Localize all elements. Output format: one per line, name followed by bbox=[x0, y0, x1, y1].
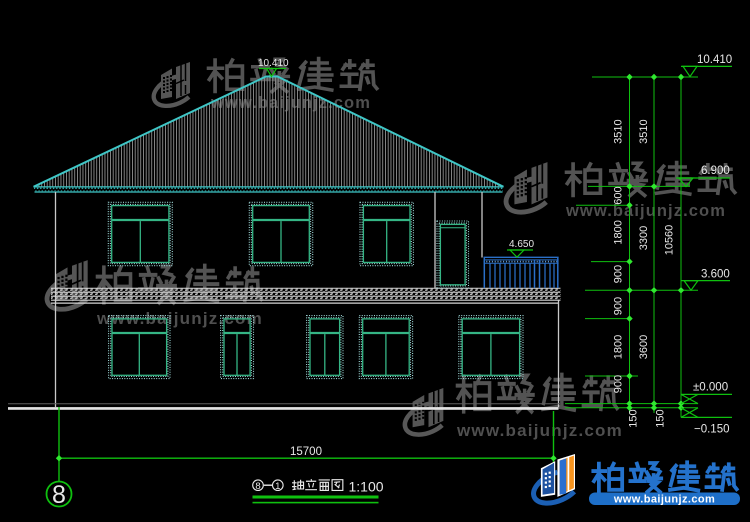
svg-text:6.900: 6.900 bbox=[701, 165, 730, 177]
svg-text:1800: 1800 bbox=[613, 335, 625, 359]
svg-text:4.650: 4.650 bbox=[509, 239, 534, 250]
svg-text:3510: 3510 bbox=[613, 119, 625, 143]
svg-text:3300: 3300 bbox=[638, 226, 650, 250]
svg-text:10.410: 10.410 bbox=[697, 54, 732, 66]
svg-text:900: 900 bbox=[613, 297, 625, 315]
svg-text:1: 1 bbox=[275, 481, 280, 492]
svg-text:3510: 3510 bbox=[638, 119, 650, 143]
svg-text:±0.000: ±0.000 bbox=[693, 382, 728, 394]
svg-text:www.baijunjz.com: www.baijunjz.com bbox=[456, 421, 623, 440]
svg-text:8: 8 bbox=[255, 481, 260, 492]
svg-text:150: 150 bbox=[628, 409, 640, 427]
svg-text:3600: 3600 bbox=[638, 335, 650, 359]
svg-text:150: 150 bbox=[655, 409, 667, 427]
svg-text:600: 600 bbox=[613, 186, 625, 204]
svg-text:900: 900 bbox=[613, 375, 625, 393]
svg-text:8: 8 bbox=[52, 481, 66, 509]
svg-text:10.410: 10.410 bbox=[258, 58, 289, 69]
svg-text:−0.150: −0.150 bbox=[694, 424, 730, 436]
svg-text:1:100: 1:100 bbox=[349, 478, 384, 494]
svg-text:10560: 10560 bbox=[664, 225, 676, 256]
svg-text:1800: 1800 bbox=[613, 220, 625, 244]
svg-text:15700: 15700 bbox=[290, 446, 322, 458]
svg-text:900: 900 bbox=[613, 265, 625, 283]
svg-text:3.600: 3.600 bbox=[701, 269, 730, 281]
svg-text:www.baijunjz.com: www.baijunjz.com bbox=[613, 494, 715, 506]
